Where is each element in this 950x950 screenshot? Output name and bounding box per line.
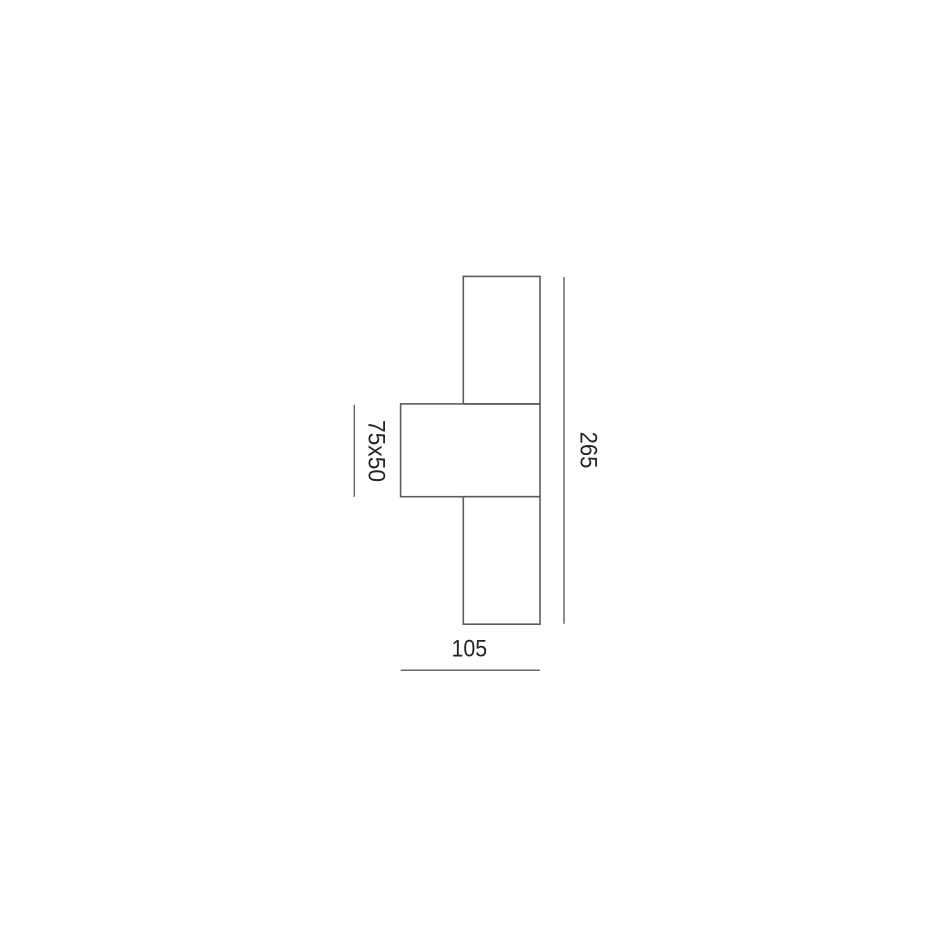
svg-text:265: 265: [575, 432, 602, 469]
svg-text:105: 105: [451, 634, 487, 661]
svg-text:75x50: 75x50: [363, 420, 390, 482]
